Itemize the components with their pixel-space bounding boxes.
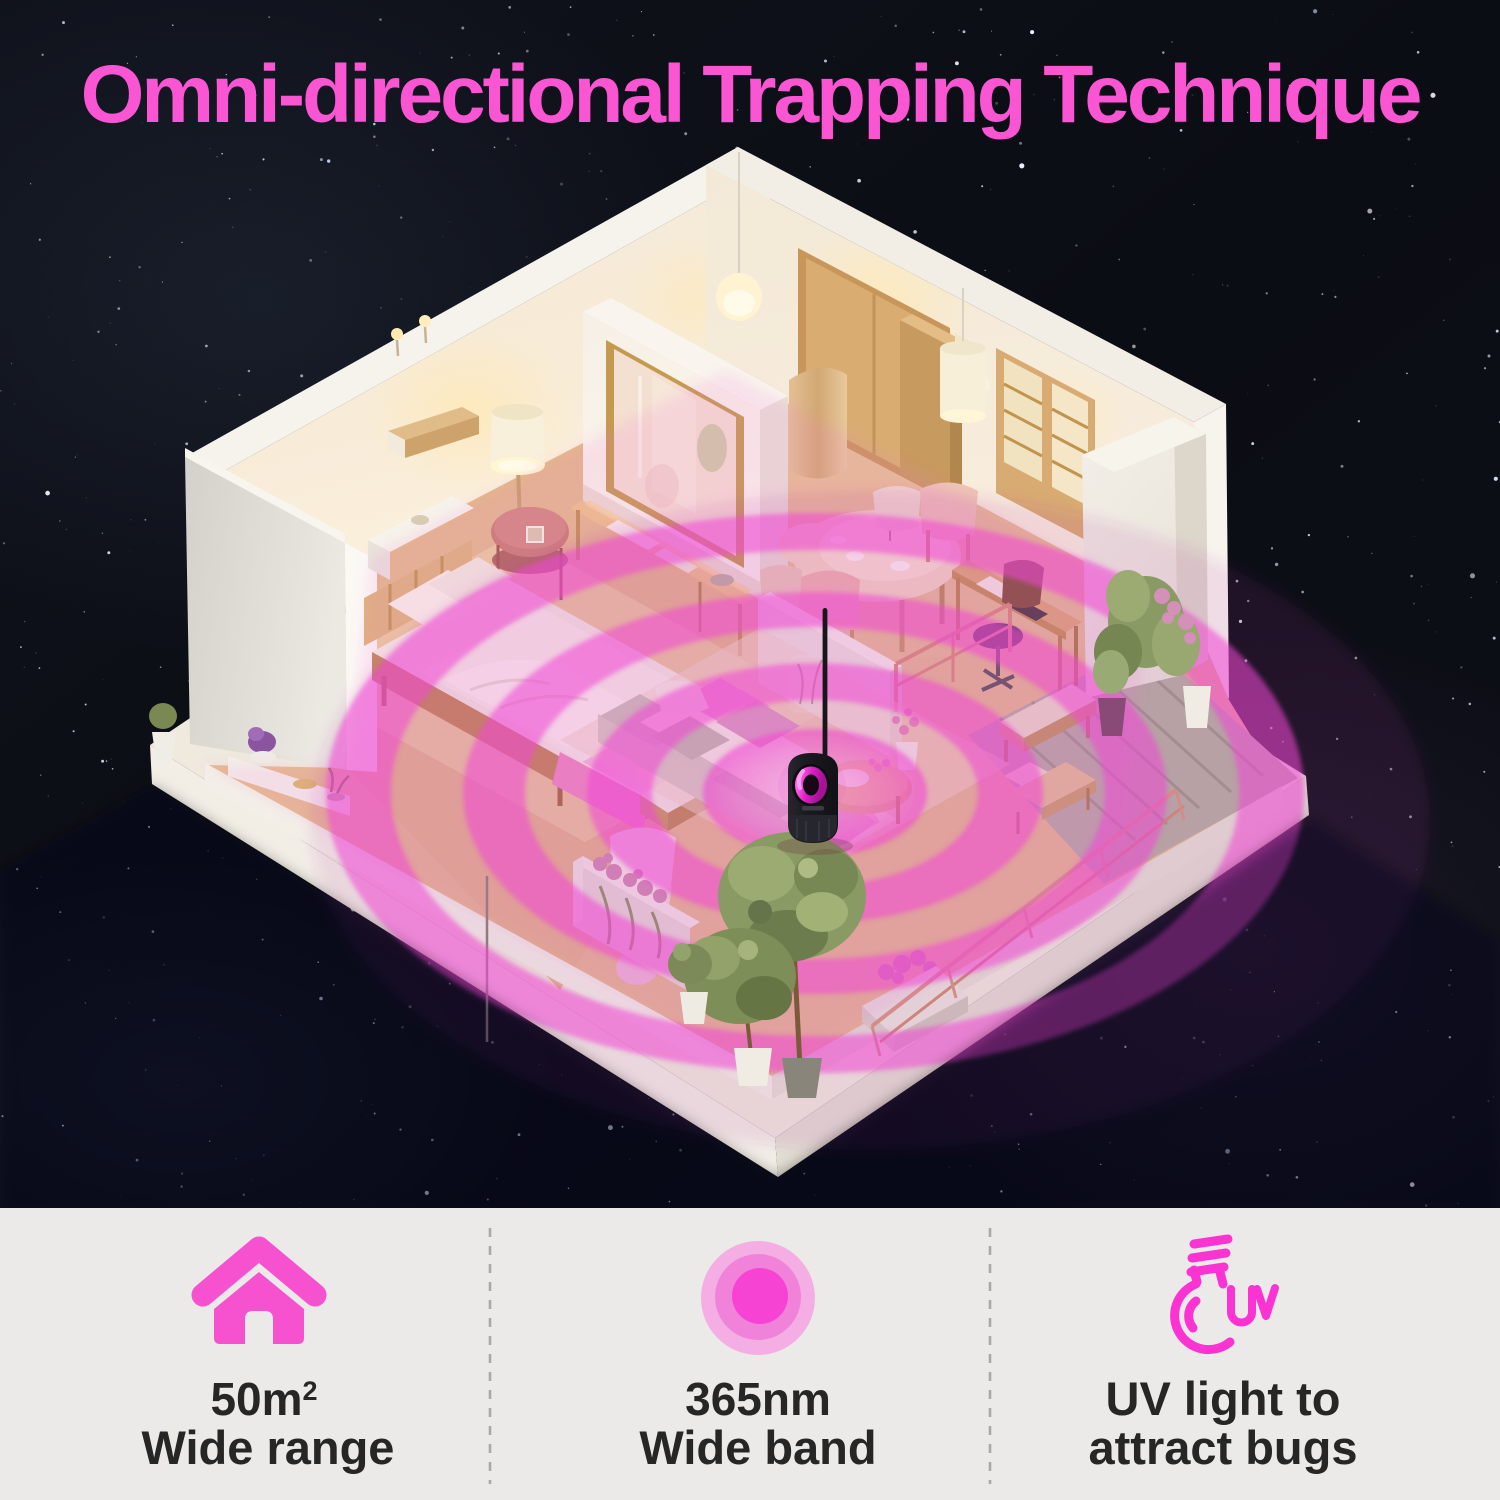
svg-text:Omni-directional Trapping Tech: Omni-directional Trapping Technique bbox=[81, 49, 1420, 140]
svg-text:UV light to: UV light to bbox=[1106, 1372, 1341, 1425]
svg-text:365nm: 365nm bbox=[685, 1373, 831, 1425]
svg-text:Wide band: Wide band bbox=[639, 1421, 876, 1474]
svg-text:50m2: 50m2 bbox=[210, 1373, 317, 1425]
svg-text:attract bugs: attract bugs bbox=[1089, 1421, 1358, 1474]
svg-text:Wide range: Wide range bbox=[142, 1421, 395, 1474]
